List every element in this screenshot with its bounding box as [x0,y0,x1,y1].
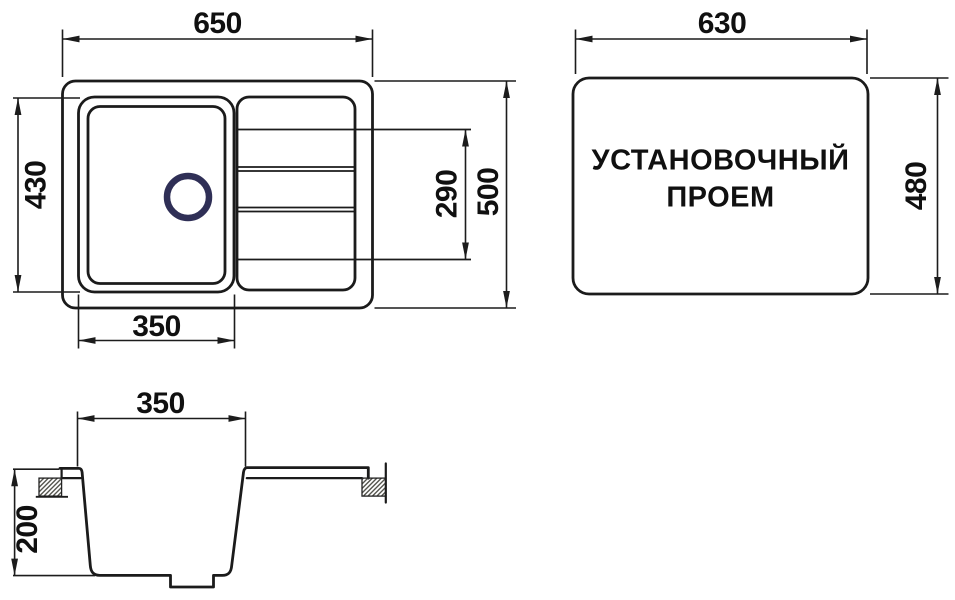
dim-200-label: 200 [11,505,44,554]
countertop-hatch-left [39,478,62,496]
dim-500-label: 500 [472,168,505,217]
top-view: 650 430 350 500 290 [13,7,516,349]
dim-section-bowl-width: 350 [78,387,246,467]
dim-cutout-width: 630 [576,7,868,74]
drain-hole [167,176,209,218]
dim-drainboard-length: 290 [431,130,466,260]
dim-overall-width: 650 [63,7,373,77]
dim-650-label: 650 [193,7,242,40]
dim-bowl-depth: 430 [13,98,80,292]
dim-290-label: 290 [431,170,464,219]
dim-bowl-width: 350 [79,295,235,349]
dim-cutout-height: 480 [870,78,949,294]
dim-350-section-label: 350 [136,387,185,420]
cutout-label-line2: ПРОЕМ [666,182,774,214]
drainboard-panel [237,97,355,290]
section-view: 350 200 [11,387,386,587]
dim-480-label: 480 [900,162,933,211]
drawing-canvas: 650 430 350 500 290 УСТАНОВОЧНЫЙ ПРОЕМ [0,0,955,600]
dim-350-label: 350 [132,310,181,343]
dim-630-label: 630 [698,7,747,40]
bowl-inner-edge [88,107,225,284]
sink-outer-edge [63,81,373,308]
dim-430-label: 430 [20,161,53,210]
cutout-view: УСТАНОВОЧНЫЙ ПРОЕМ 630 480 [573,7,949,294]
cutout-label-line1: УСТАНОВОЧНЫЙ [592,143,850,177]
sink-dimension-drawing: 650 430 350 500 290 УСТАНОВОЧНЫЙ ПРОЕМ [0,0,955,600]
left-rim-step [62,468,81,478]
countertop-hatch-right [362,478,386,496]
bowl-section-outline [60,468,368,587]
